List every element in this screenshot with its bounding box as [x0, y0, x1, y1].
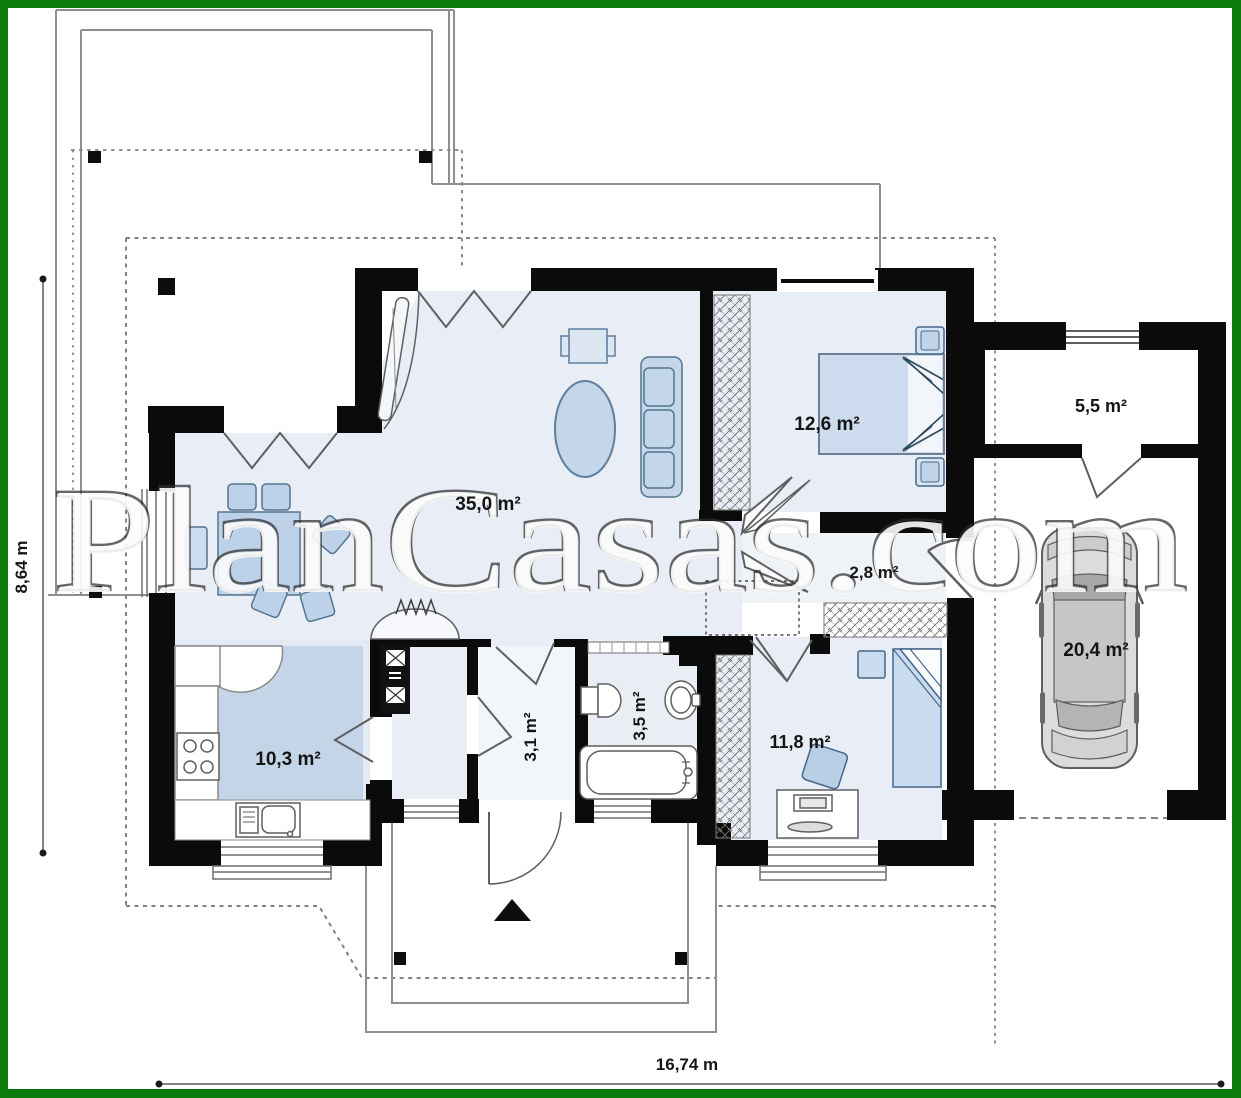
svg-text:35,0 m²: 35,0 m² [455, 494, 520, 515]
svg-text:10,3 m²: 10,3 m² [255, 749, 320, 770]
svg-text:20,4 m²: 20,4 m² [1063, 640, 1128, 661]
svg-text:12,6 m²: 12,6 m² [794, 414, 859, 435]
svg-text:11,8 m²: 11,8 m² [769, 732, 830, 752]
svg-text:16,74 m: 16,74 m [656, 1055, 718, 1074]
svg-text:5,5 m²: 5,5 m² [1075, 396, 1127, 416]
svg-text:PlanCasas.com: PlanCasas.com [52, 459, 1188, 624]
svg-text:8,64 m: 8,64 m [12, 541, 31, 594]
svg-text:3,5 m²: 3,5 m² [630, 691, 649, 740]
svg-text:3,1 m²: 3,1 m² [521, 712, 540, 761]
svg-text:2,8 m²: 2,8 m² [849, 563, 898, 582]
